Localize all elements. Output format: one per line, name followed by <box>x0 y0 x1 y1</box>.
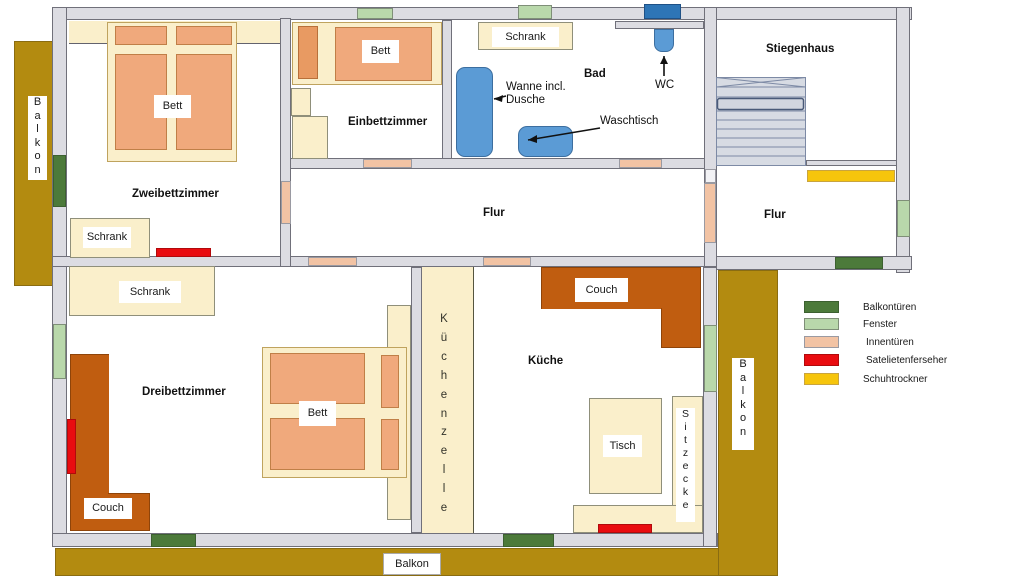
svg-text:Wanne incl.: Wanne incl. <box>506 81 566 93</box>
svg-text:WC: WC <box>655 79 674 91</box>
svg-text:Dusche: Dusche <box>506 94 545 106</box>
svg-text:Waschtisch: Waschtisch <box>600 115 658 127</box>
